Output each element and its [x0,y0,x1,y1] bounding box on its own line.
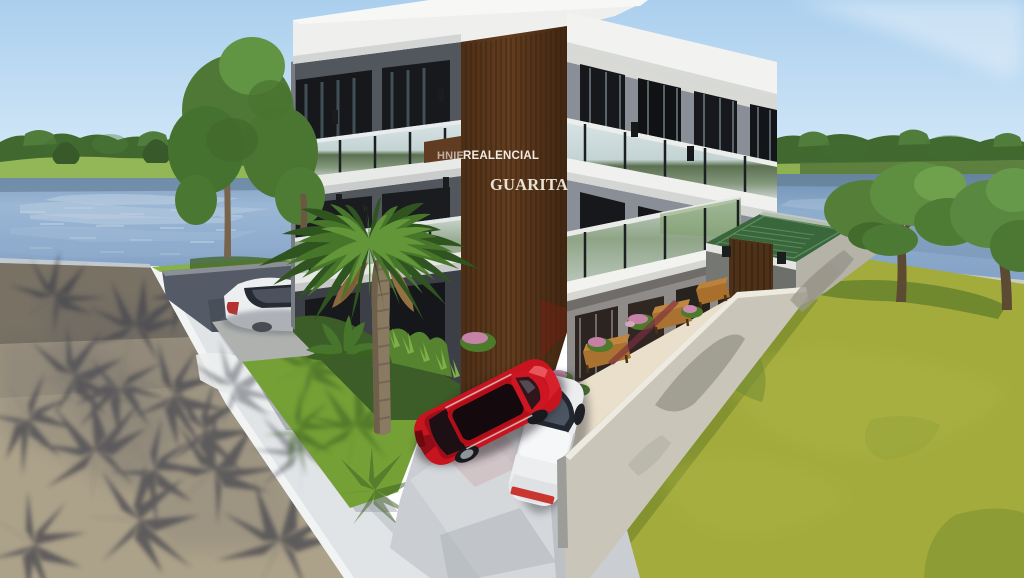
svg-text:REALENCIAL: REALENCIAL [463,150,539,162]
svg-text:GUARITA: GUARITA [490,175,568,194]
svg-text:HNIE: HNIE [437,150,464,162]
